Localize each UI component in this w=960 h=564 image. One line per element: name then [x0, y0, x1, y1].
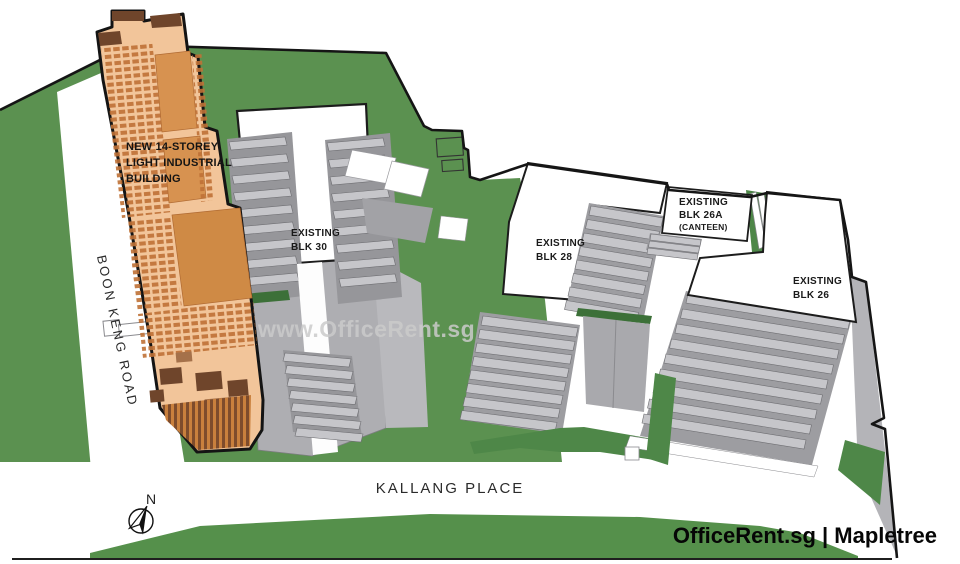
new-building-label-line2: LIGHT INDUSTRIAL: [126, 157, 232, 169]
watermark-text: www.OfficeRent.sg: [257, 316, 475, 342]
blk30-label-line2: BLK 30: [291, 242, 327, 253]
blk30-label-line1: EXISTING: [291, 228, 340, 239]
blk28-label-line1: EXISTING: [536, 238, 585, 249]
blk26a-label-line3: (CANTEEN): [679, 222, 728, 232]
compass-north-label: N: [146, 491, 156, 507]
blk26a-label-line2: BLK 26A: [679, 210, 723, 221]
blk26-label-line1: EXISTING: [793, 276, 842, 287]
blk26-label-line2: BLK 26: [793, 290, 829, 301]
branding-text: OfficeRent.sg | Mapletree: [673, 523, 937, 548]
blk26a-label-line1: EXISTING: [679, 197, 728, 208]
kallang-place-label: KALLANG PLACE: [376, 480, 525, 497]
site-plan-map: EXISTING BLK 30 EXISTING BLK 28: [0, 0, 960, 564]
new-building-label-line3: BUILDING: [126, 173, 181, 185]
site-plan-page: EXISTING BLK 30 EXISTING BLK 28: [0, 0, 960, 564]
blk28-label-line2: BLK 28: [536, 252, 572, 263]
plaza-structure: [625, 447, 639, 460]
new-building-label-line1: NEW 14-STOREY: [126, 141, 219, 153]
